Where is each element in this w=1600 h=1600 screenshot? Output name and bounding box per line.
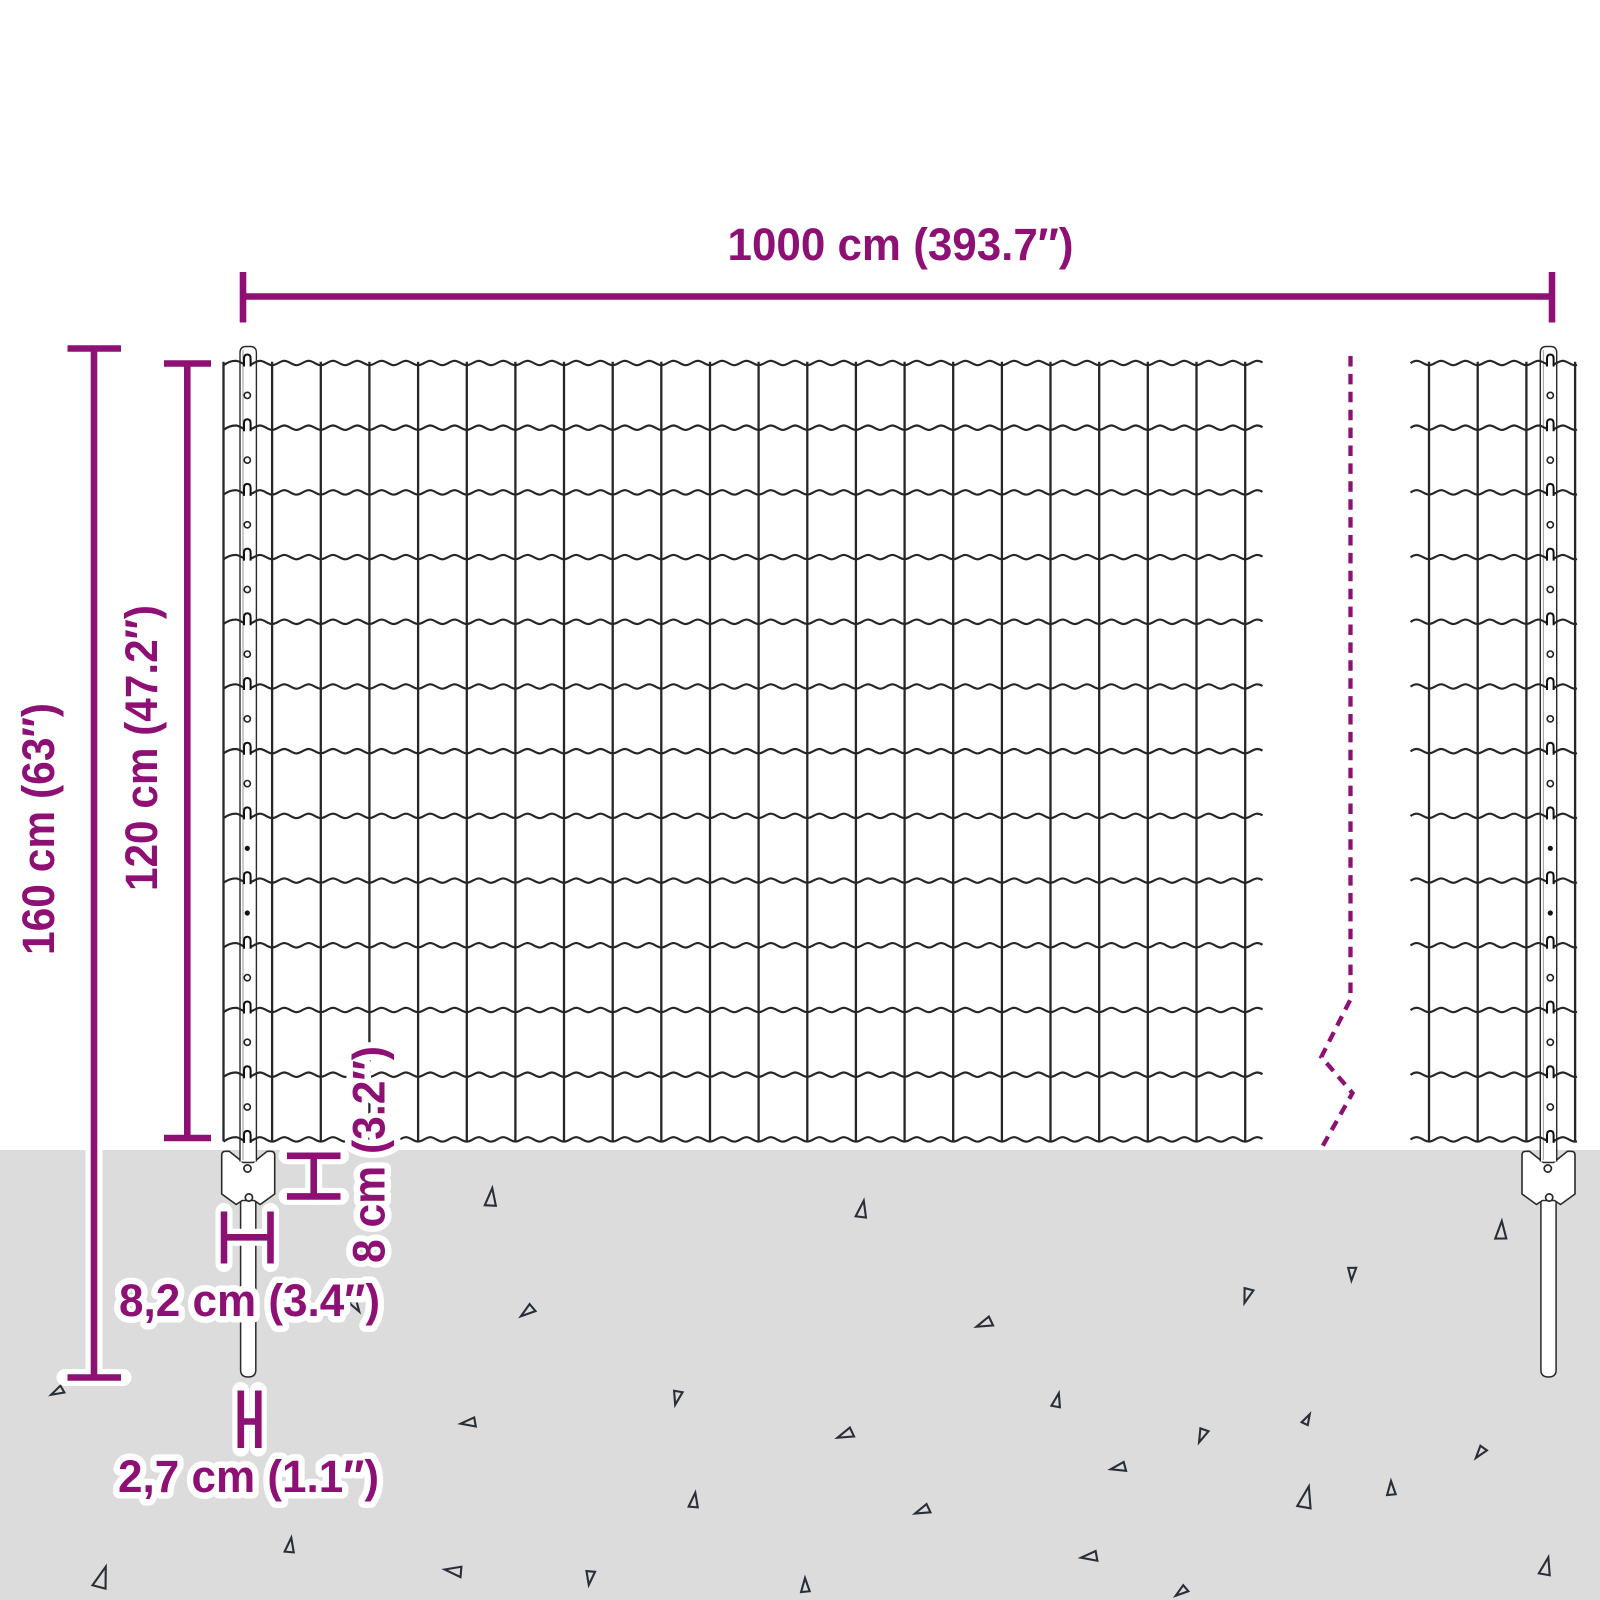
svg-text:8 cm (3.2″): 8 cm (3.2″) xyxy=(344,1046,395,1263)
svg-text:120 cm (47.2″): 120 cm (47.2″) xyxy=(116,605,167,891)
svg-text:1000 cm (393.7″): 1000 cm (393.7″) xyxy=(728,219,1074,270)
svg-text:2,7 cm (1.1″): 2,7 cm (1.1″) xyxy=(118,1451,379,1502)
svg-text:8,2 cm (3.4″): 8,2 cm (3.4″) xyxy=(119,1275,380,1326)
svg-text:160 cm (63″): 160 cm (63″) xyxy=(13,703,64,955)
